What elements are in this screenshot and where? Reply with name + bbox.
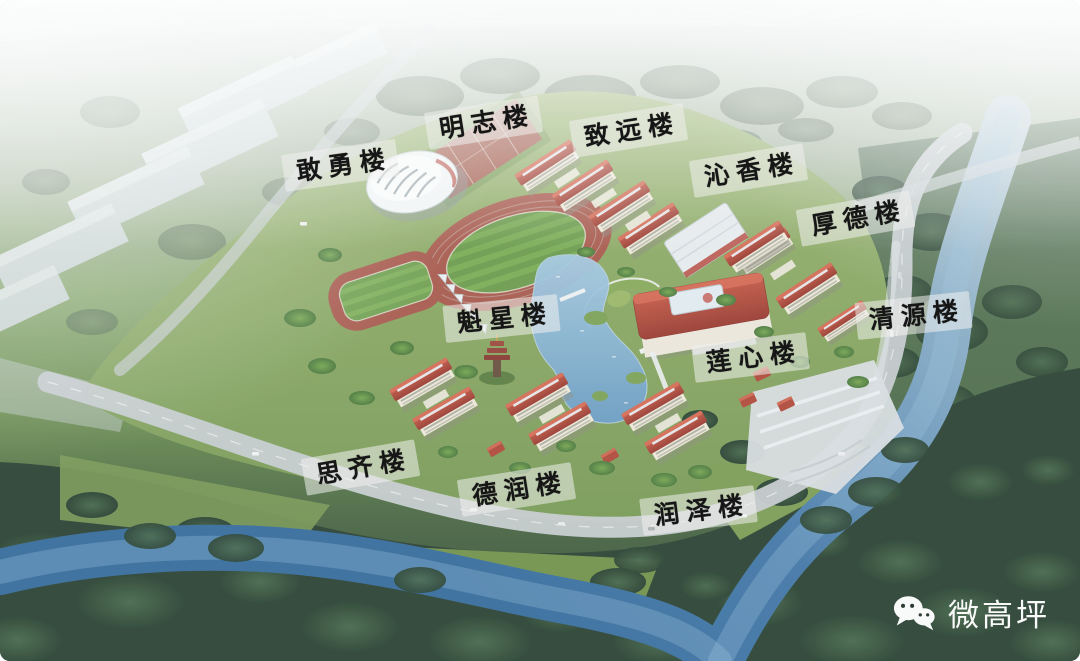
wechat-icon	[892, 593, 938, 633]
campus-aerial-image: 敢勇楼 明志楼 致远楼 沁香楼 厚德楼 清源楼 魁星楼 莲心楼 思齐楼 德润楼 …	[0, 0, 1080, 661]
watermark-text: 微高坪	[948, 590, 1050, 635]
watermark: 微高坪	[892, 590, 1050, 635]
